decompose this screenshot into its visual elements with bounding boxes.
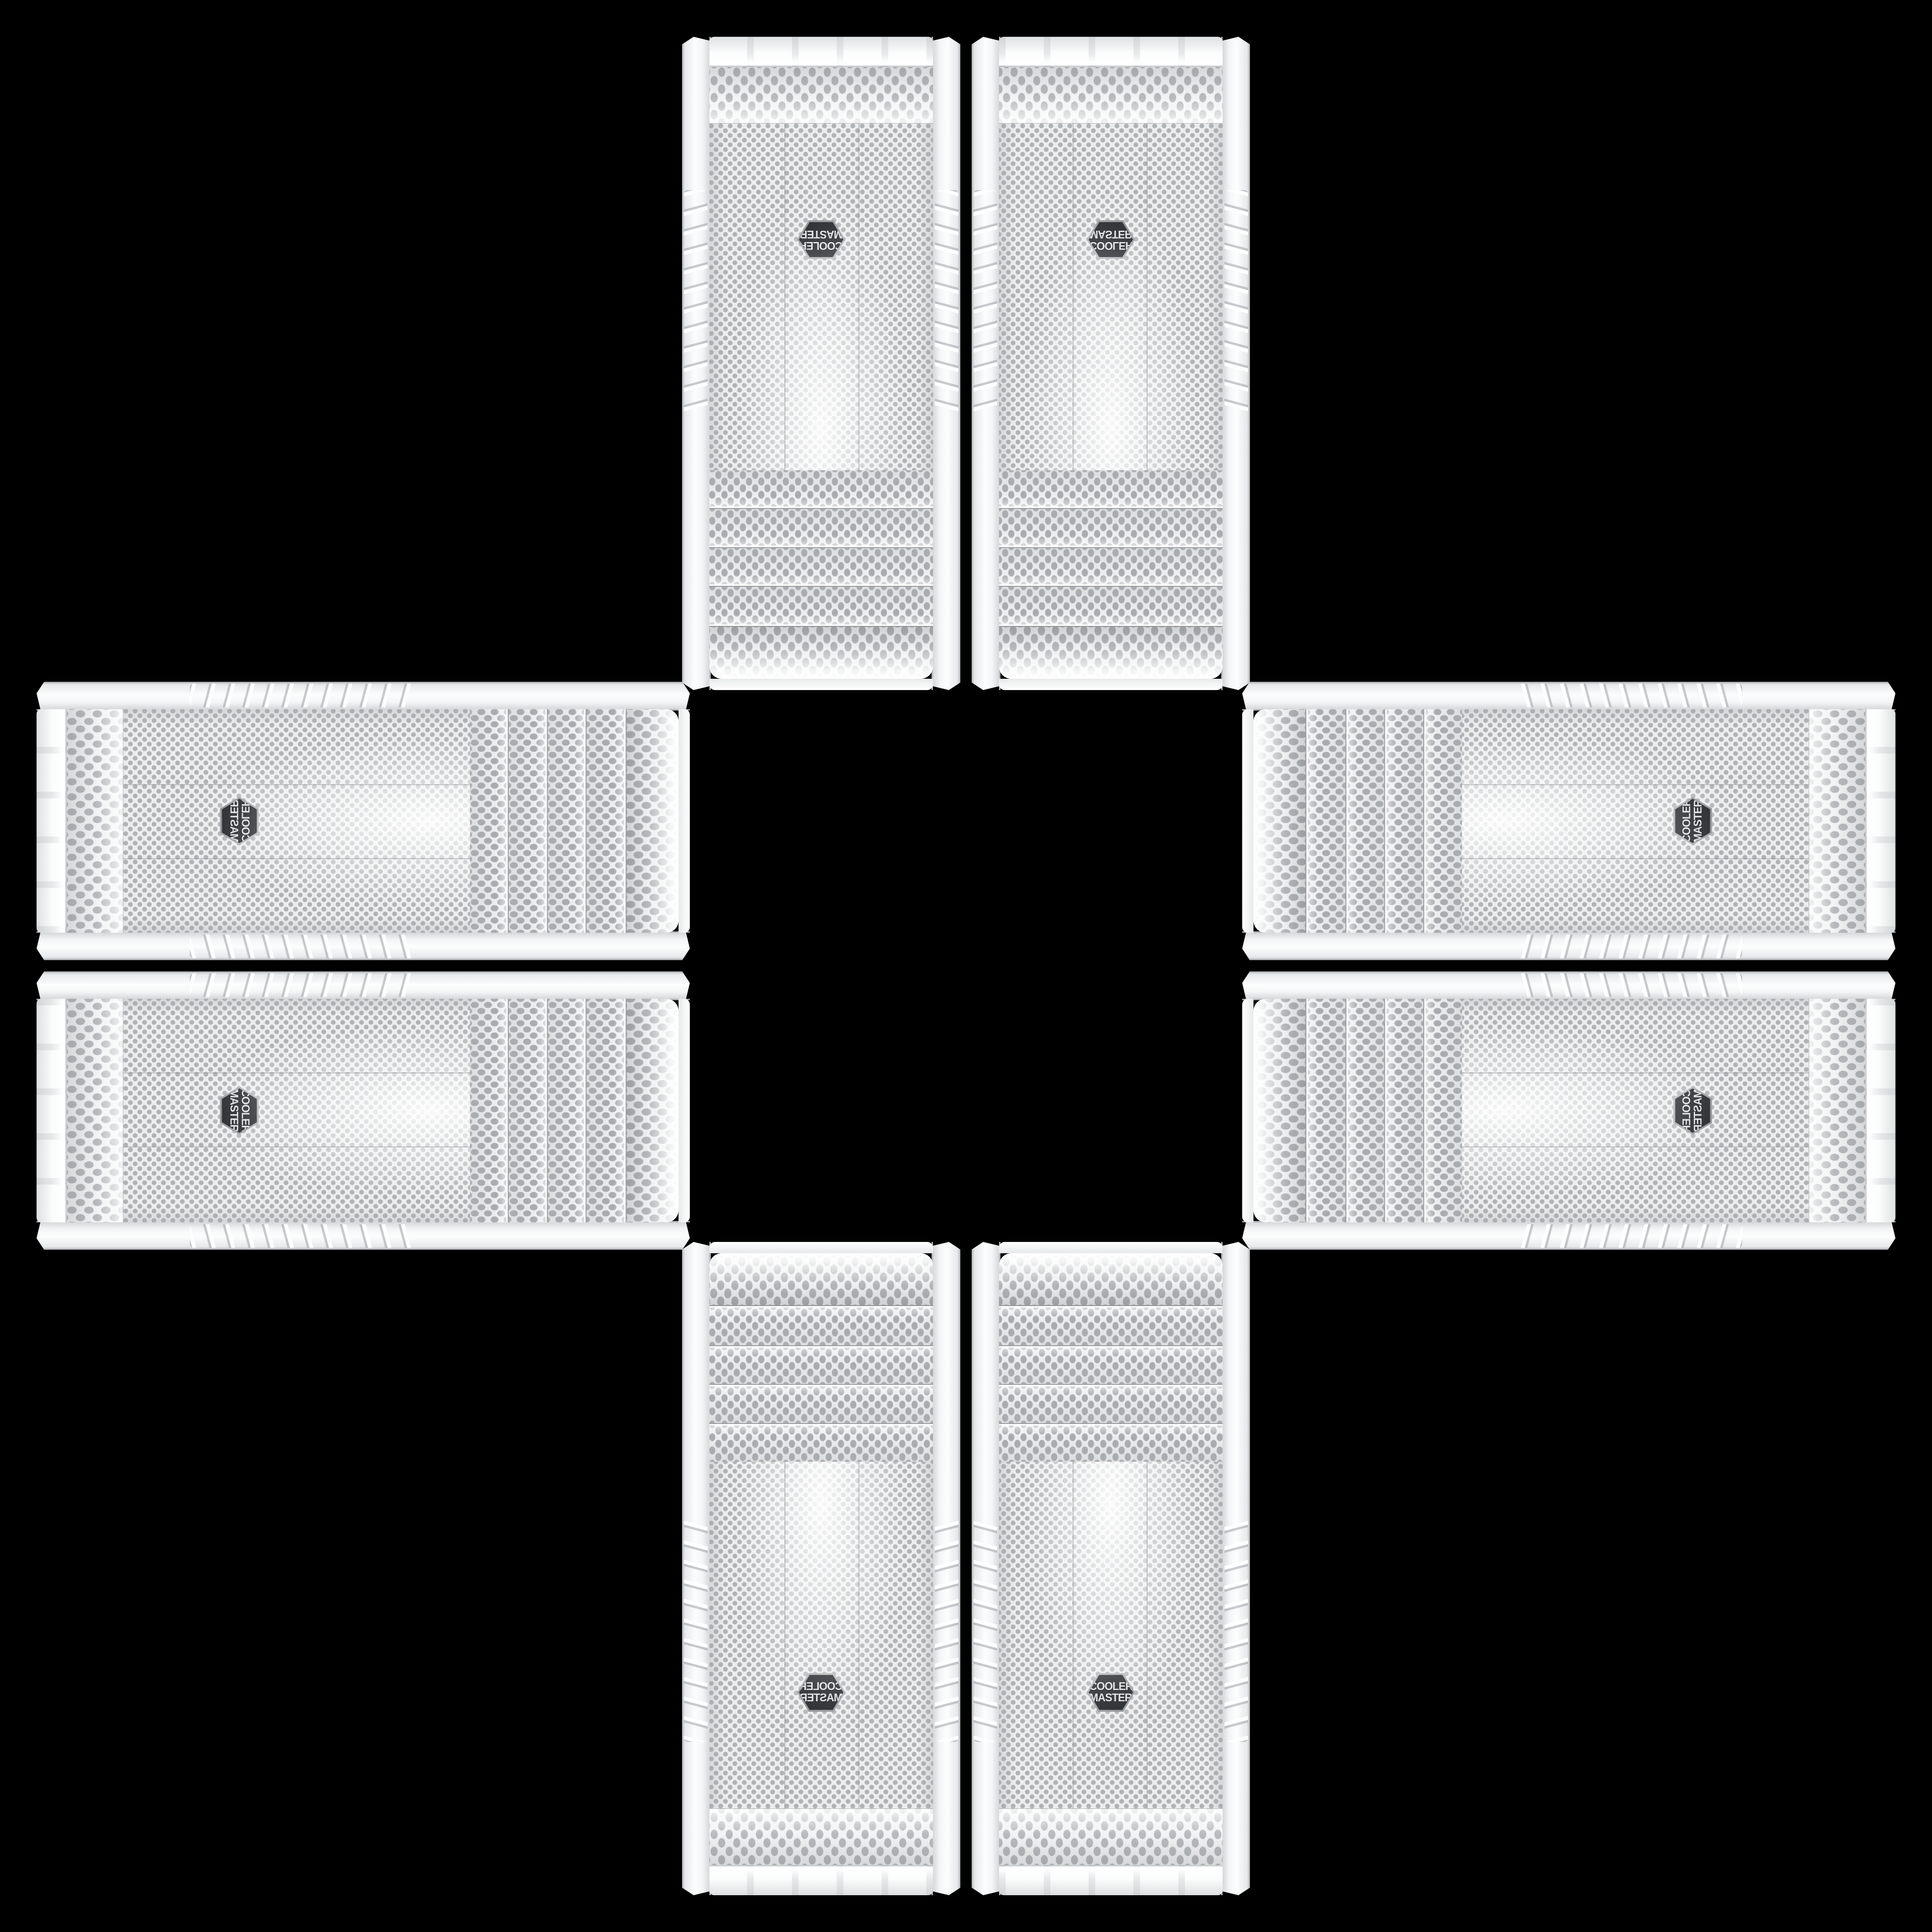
top-mesh-curve (999, 1253, 1223, 1306)
case-left-flank (972, 37, 999, 690)
front-mesh-panel (1462, 999, 1809, 1223)
drive-bay-cover (999, 548, 1223, 587)
drive-bay-cover (509, 999, 548, 1223)
drive-bay-cover (1384, 999, 1424, 1223)
grip-ribs-icon (1516, 684, 1742, 708)
badge-text-line2: MASTER (1090, 228, 1133, 240)
case-left-flank (37, 933, 690, 960)
pc-case: COOLER MASTER (37, 972, 690, 1250)
drive-bay-cover (709, 1384, 933, 1423)
case-pair-left: COOLER MASTER COOLER MAS (37, 682, 690, 1250)
top-lip (1242, 999, 1254, 1223)
case-front-panel: COOLER MASTER (37, 709, 690, 933)
drive-bay-cover (999, 509, 1223, 549)
pc-case: COOLER MASTER (37, 682, 690, 960)
lower-mesh-panel (67, 709, 124, 933)
case-right-flank (37, 1223, 690, 1250)
case-pair-top: COOLER MASTER COOLER MAS (682, 37, 1250, 690)
case-left-flank (933, 37, 960, 690)
case-right-flank (1223, 37, 1250, 690)
mesh-seam (784, 124, 785, 470)
drive-bay-covers (1307, 709, 1462, 933)
top-lip (709, 1242, 933, 1253)
drive-bay-cover (999, 587, 1223, 626)
lower-mesh-panel (1809, 999, 1866, 1223)
grip-ribs-icon (684, 1516, 708, 1742)
cooler-master-logo-icon: COOLER MASTER (799, 1675, 843, 1710)
drive-bay-cover (1307, 709, 1346, 933)
pc-case: COOLER MASTER (682, 1242, 960, 1895)
case-pair-right: COOLER MASTER COOLER MAS (1242, 682, 1896, 1250)
bottom-cap (709, 1865, 933, 1895)
case-right-flank (37, 682, 690, 709)
front-mesh-panel (124, 999, 470, 1223)
grip-ribs-icon (190, 684, 416, 708)
drive-bay-cover (709, 509, 933, 549)
top-mesh-curve (1254, 999, 1307, 1223)
badge-text-line1: COOLER (1089, 1681, 1133, 1692)
drive-bay-cover (999, 1306, 1223, 1345)
mesh-seam (124, 1146, 470, 1147)
cooler-master-logo-icon: COOLER MASTER (1675, 799, 1710, 843)
drive-bay-cover (1307, 999, 1346, 1223)
drive-bay-cover (709, 1306, 933, 1345)
case-front-panel: COOLER MASTER (999, 1242, 1223, 1895)
cooler-master-logo-icon: COOLER MASTER (1089, 222, 1133, 257)
pc-case: COOLER MASTER (1242, 972, 1896, 1250)
drive-bay-cover (1384, 709, 1424, 933)
drive-bay-cover (709, 1423, 933, 1462)
case-right-flank (1223, 1242, 1250, 1895)
grip-ribs-icon (1516, 974, 1742, 997)
badge-text-line1: COOLER (240, 799, 251, 843)
badge-text-line1: COOLER (1682, 799, 1693, 843)
mesh-seam (858, 1462, 859, 1808)
pc-case: COOLER MASTER (972, 1242, 1250, 1895)
grip-ribs-icon (1224, 1516, 1248, 1742)
front-mesh-panel (999, 1462, 1223, 1808)
case-right-flank (1242, 682, 1896, 709)
drive-bay-covers (470, 999, 626, 1223)
case-front-panel: COOLER MASTER (709, 1242, 933, 1895)
bottom-cap (37, 709, 67, 933)
top-mesh-curve (709, 626, 933, 679)
pc-case: COOLER MASTER (972, 37, 1250, 690)
bottom-cap (1865, 709, 1896, 933)
grip-ribs-icon (1516, 1224, 1742, 1248)
grip-ribs-icon (190, 974, 416, 997)
grip-ribs-icon (684, 190, 708, 416)
badge-text-line2: MASTER (800, 1692, 843, 1704)
badge-text-line2: MASTER (228, 799, 240, 842)
drive-bay-cover (999, 1345, 1223, 1384)
case-pair-bottom: COOLER MASTER COOLER MAS (682, 1242, 1250, 1895)
drive-bay-cover (709, 548, 933, 587)
badge-text-line1: COOLER (799, 240, 843, 251)
badge-text-line1: COOLER (799, 1681, 843, 1692)
case-left-flank (37, 972, 690, 999)
lower-mesh-panel (67, 999, 124, 1223)
drive-bay-covers (709, 470, 933, 626)
cooler-master-logo-icon: COOLER MASTER (1089, 1675, 1133, 1710)
grip-ribs-icon (974, 1516, 997, 1742)
case-right-flank (682, 1242, 709, 1895)
case-front-panel: COOLER MASTER (999, 37, 1223, 690)
grip-ribs-icon (974, 190, 997, 416)
top-lip (679, 999, 690, 1223)
front-mesh-panel (1462, 709, 1809, 933)
case-right-flank (682, 37, 709, 690)
top-lip (1242, 709, 1254, 933)
mesh-seam (1147, 124, 1148, 470)
drive-bay-covers (470, 709, 626, 933)
top-lip (709, 679, 933, 690)
grip-ribs-icon (1516, 935, 1742, 958)
bottom-cap (709, 37, 933, 67)
top-lip (999, 679, 1223, 690)
top-lip (999, 1242, 1223, 1253)
mesh-seam (1073, 124, 1074, 470)
scene-canvas: COOLER MASTER COOLER MAS (0, 0, 1932, 1932)
badge-text-line1: COOLER (1089, 240, 1133, 251)
drive-bay-cover (470, 999, 509, 1223)
case-left-flank (972, 1242, 999, 1895)
pc-case: COOLER MASTER (1242, 682, 1896, 960)
grip-ribs-icon (935, 1516, 958, 1742)
drive-bay-covers (999, 470, 1223, 626)
pc-case: COOLER MASTER (682, 37, 960, 690)
drive-bay-covers (999, 1306, 1223, 1462)
drive-bay-covers (1307, 999, 1462, 1223)
lower-mesh-panel (709, 1808, 933, 1865)
bottom-cap (1865, 999, 1896, 1223)
front-mesh-panel (709, 1462, 933, 1808)
mesh-seam (1462, 784, 1809, 785)
top-mesh-curve (626, 999, 679, 1223)
top-mesh-curve (626, 709, 679, 933)
mesh-seam (124, 1073, 470, 1074)
badge-text-line2: MASTER (1693, 799, 1704, 842)
mesh-seam (784, 1462, 785, 1808)
mesh-seam (1462, 1146, 1809, 1147)
cooler-master-logo-icon: COOLER MASTER (222, 799, 257, 843)
mesh-seam (124, 784, 470, 785)
top-mesh-curve (1254, 709, 1307, 933)
top-lip (679, 709, 690, 933)
drive-bay-covers (709, 1306, 933, 1462)
badge-text-line1: COOLER (240, 1089, 251, 1133)
mesh-seam (1147, 1462, 1148, 1808)
cooler-master-logo-icon: COOLER MASTER (222, 1089, 257, 1133)
lower-mesh-panel (709, 67, 933, 124)
drive-bay-cover (999, 470, 1223, 509)
badge-text-line2: MASTER (1090, 1692, 1133, 1704)
badge-text-line2: MASTER (1693, 1089, 1704, 1132)
drive-bay-cover (509, 709, 548, 933)
lower-mesh-panel (1809, 709, 1866, 933)
case-front-panel: COOLER MASTER (37, 999, 690, 1223)
drive-bay-cover (548, 999, 587, 1223)
grip-ribs-icon (190, 935, 416, 958)
bottom-cap (999, 37, 1223, 67)
case-front-panel: COOLER MASTER (1242, 709, 1896, 933)
drive-bay-cover (709, 1345, 933, 1384)
drive-bay-cover (587, 709, 626, 933)
mesh-seam (1073, 1462, 1074, 1808)
badge-text-line2: MASTER (228, 1089, 240, 1132)
drive-bay-cover (709, 470, 933, 509)
top-mesh-curve (709, 1253, 933, 1306)
bottom-cap (999, 1865, 1223, 1895)
drive-bay-cover (1423, 999, 1462, 1223)
lower-mesh-panel (999, 67, 1223, 124)
case-left-flank (1242, 933, 1896, 960)
front-mesh-panel (709, 124, 933, 470)
cooler-master-logo-icon: COOLER MASTER (799, 222, 843, 257)
grip-ribs-icon (935, 190, 958, 416)
drive-bay-cover (1423, 709, 1462, 933)
badge-text-line1: COOLER (1682, 1089, 1693, 1133)
case-front-panel: COOLER MASTER (1242, 999, 1896, 1223)
drive-bay-cover (548, 709, 587, 933)
badge-text-line2: MASTER (800, 228, 843, 240)
grip-ribs-icon (190, 1224, 416, 1248)
top-mesh-curve (999, 626, 1223, 679)
mesh-seam (124, 858, 470, 859)
drive-bay-cover (709, 587, 933, 626)
case-left-flank (933, 1242, 960, 1895)
drive-bay-cover (587, 999, 626, 1223)
grip-ribs-icon (1224, 190, 1248, 416)
case-left-flank (1242, 972, 1896, 999)
mesh-seam (1462, 858, 1809, 859)
drive-bay-cover (999, 1423, 1223, 1462)
cooler-master-logo-icon: COOLER MASTER (1675, 1089, 1710, 1133)
drive-bay-cover (470, 709, 509, 933)
mesh-seam (858, 124, 859, 470)
bottom-cap (37, 999, 67, 1223)
case-right-flank (1242, 1223, 1896, 1250)
front-mesh-panel (124, 709, 470, 933)
front-mesh-panel (999, 124, 1223, 470)
drive-bay-cover (1345, 709, 1384, 933)
mesh-seam (1462, 1073, 1809, 1074)
drive-bay-cover (1345, 999, 1384, 1223)
drive-bay-cover (999, 1384, 1223, 1423)
lower-mesh-panel (999, 1808, 1223, 1865)
case-front-panel: COOLER MASTER (709, 37, 933, 690)
